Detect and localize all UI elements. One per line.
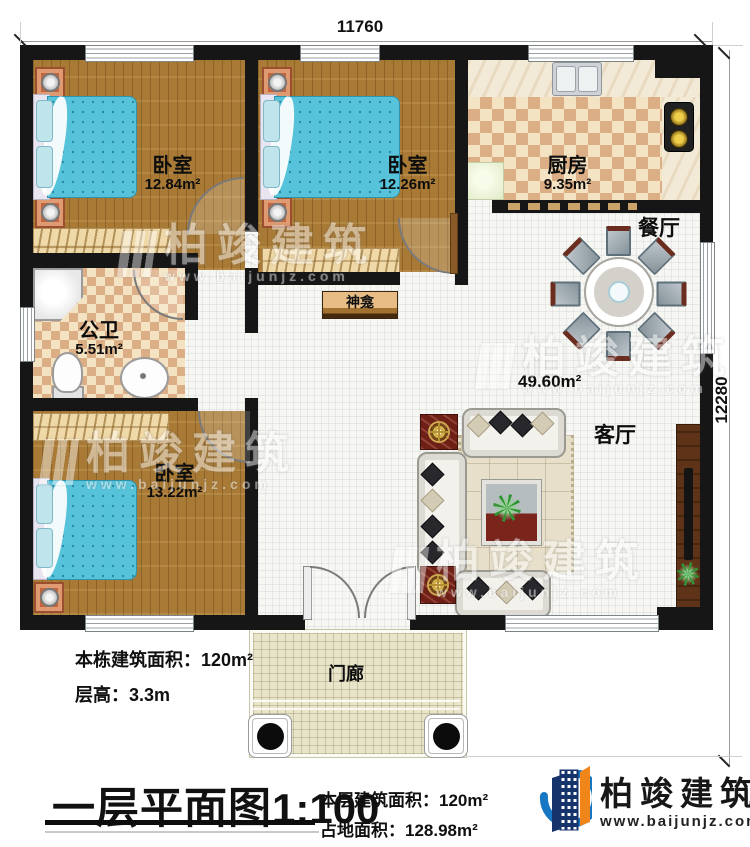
tv-icon	[684, 468, 693, 560]
room-area: 5.51m²	[40, 342, 158, 359]
bathroom-sink-drain	[140, 373, 146, 379]
porch-step-line	[252, 708, 460, 710]
shrine-cabinet: 神龛	[322, 291, 398, 319]
brand-logo: 柏竣建筑 www.baijunjz.com	[530, 762, 750, 844]
title-underline-thin	[45, 831, 319, 833]
room-label-bathroom: 公卫 5.51m²	[40, 320, 158, 359]
witness-line	[466, 756, 742, 757]
pillow	[36, 146, 53, 188]
porch-column-left	[248, 714, 292, 758]
column-post	[433, 723, 460, 750]
potted-plant-icon	[677, 562, 699, 586]
living-area-value: 49.60m²	[518, 372, 581, 391]
dining-table-center	[608, 281, 630, 303]
wardrobe	[33, 413, 169, 441]
shrine-label: 神龛	[346, 292, 374, 312]
room-name: 厨房	[505, 155, 630, 177]
lamp-icon	[40, 588, 59, 607]
title-floor-area: 本层建筑面积：120m²	[320, 786, 488, 811]
title-land-area: 占地面积：128.98m²	[320, 816, 478, 841]
room-area: 13.22m²	[112, 485, 237, 502]
note-building-area: 本栋建筑面积：120m²	[75, 646, 253, 672]
ceiling-lamp-icon	[427, 574, 449, 596]
kitchen-sliding-door	[508, 203, 637, 210]
wall-bedroom2-bottom	[258, 272, 400, 285]
witness-line	[20, 22, 21, 45]
witness-line	[712, 22, 713, 45]
pillow	[36, 100, 53, 142]
porch-column-right	[424, 714, 468, 758]
pillow	[263, 146, 280, 188]
room-label-dining: 餐厅	[638, 217, 680, 241]
room-area: 12.84m²	[110, 177, 235, 194]
room-label-bedroom1: 卧室 12.84m²	[110, 155, 235, 194]
wall-hall-stub	[245, 268, 258, 333]
window	[20, 307, 35, 362]
room-label-living: 客厅	[594, 424, 636, 448]
room-name: 卧室	[110, 155, 235, 177]
room-label-bedroom3: 卧室 13.22m²	[112, 463, 237, 502]
brand-name: 柏竣建筑	[600, 776, 750, 812]
dining-chair	[657, 282, 687, 307]
note-floor-height: 层高：3.3m	[75, 681, 170, 707]
lamp-icon	[268, 73, 287, 92]
dining-chair	[606, 331, 631, 361]
dimension-width: 11760	[315, 17, 405, 37]
end-table	[420, 414, 458, 450]
porch-step-line	[252, 700, 460, 702]
wall-bottom	[192, 615, 305, 630]
kitchen-sink-basin	[556, 66, 576, 92]
brand-logo-icon	[530, 762, 592, 844]
kitchen-sink-basin	[578, 66, 598, 92]
room-label-bedroom2: 卧室 12.26m²	[345, 155, 470, 194]
window	[300, 45, 380, 62]
room-name: 卧室	[112, 463, 237, 485]
dimension-line-top	[20, 41, 713, 42]
pillow	[36, 528, 53, 568]
end-table	[420, 566, 456, 604]
window	[700, 242, 715, 354]
stove-burner	[670, 130, 688, 148]
lamp-icon	[268, 203, 287, 222]
dimension-height: 12280	[712, 370, 732, 430]
nightstand	[34, 582, 64, 613]
lamp-icon	[41, 203, 60, 222]
room-label-kitchen: 厨房 9.35m²	[505, 155, 630, 194]
wall-bottom	[20, 615, 85, 630]
wall-bathroom-right	[185, 253, 198, 320]
window	[85, 615, 194, 632]
wall-bathroom-bottom	[20, 398, 198, 411]
room-name: 公卫	[40, 320, 158, 342]
fridge	[466, 162, 504, 200]
title-underline	[45, 820, 315, 825]
room-name: 卧室	[345, 155, 470, 177]
wall-bedroom1-bedroom2	[245, 58, 258, 232]
floor-plan-page: 神龛	[0, 0, 750, 847]
plan-title-text: 一层平面图	[52, 785, 272, 833]
window	[505, 615, 659, 632]
ceiling-lamp-icon	[428, 421, 450, 443]
window	[528, 45, 634, 62]
wall-top	[378, 45, 528, 60]
wardrobe	[262, 248, 400, 274]
dining-chair	[606, 226, 631, 256]
window	[85, 45, 194, 62]
lamp-icon	[41, 73, 60, 92]
door-leaf-bedroom2	[450, 213, 458, 274]
witness-line	[713, 45, 743, 46]
nightstand	[35, 197, 65, 228]
room-label-porch: 门廊	[328, 664, 364, 684]
wall-bathroom-top	[20, 253, 187, 268]
potted-plant-icon	[493, 494, 521, 522]
nightstand	[262, 197, 292, 228]
room-area: 12.26m²	[345, 177, 470, 194]
brand-site: www.baijunjz.com	[600, 813, 750, 830]
wall-bottom	[657, 607, 713, 630]
pillow	[36, 484, 53, 524]
room-area: 9.35m²	[505, 177, 630, 194]
wall-bottom	[410, 615, 505, 630]
pillow	[263, 100, 280, 142]
dining-chair	[551, 282, 581, 307]
column-post	[257, 723, 284, 750]
stove-burner	[670, 108, 688, 126]
